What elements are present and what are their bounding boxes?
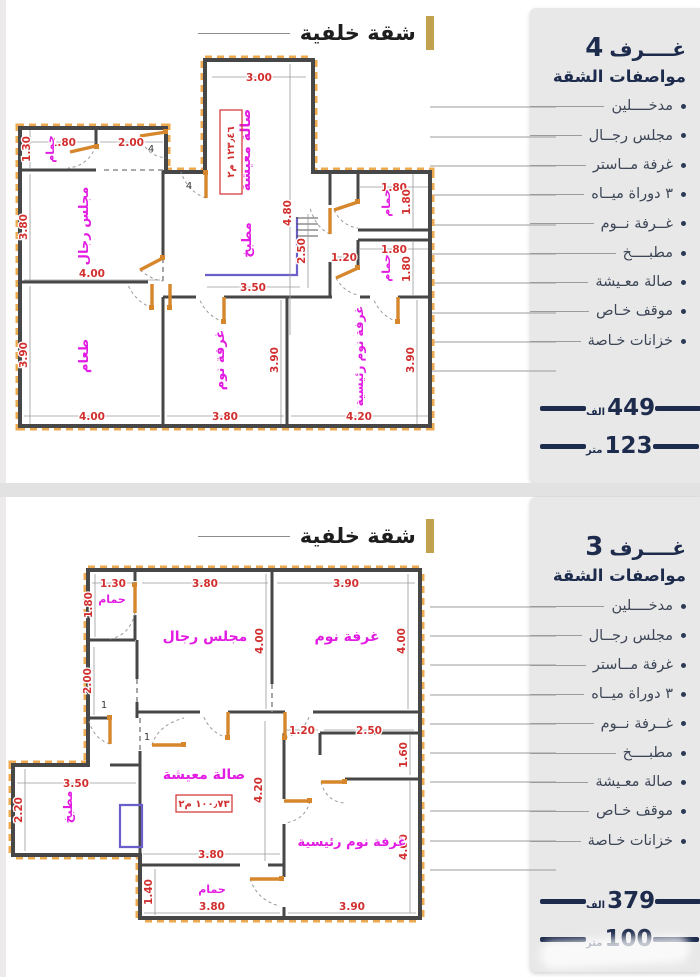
dim-label: 1.40	[143, 879, 155, 905]
walls	[13, 570, 420, 918]
connector-line	[530, 723, 594, 724]
dim-label: 1.80	[401, 256, 413, 282]
specs-title: مواصفات الشقة	[553, 67, 686, 86]
connector-line	[530, 194, 584, 195]
list-item: خزانات خـاصة	[530, 826, 700, 855]
spec-label: غرفة مــاستر	[593, 158, 673, 173]
list-item: خزانات خـاصة	[530, 326, 700, 355]
rooms-count-header: 4 غــــرف	[585, 35, 686, 61]
dim-label: 1.20	[331, 252, 357, 264]
dim-label: 2.50	[356, 725, 382, 737]
list-item: موقف خـاص	[530, 297, 700, 326]
price-unit: الف	[586, 407, 605, 418]
specs-panel-4rooms: 4 غــــرف مواصفات الشقة مدخــــلين مجلس …	[530, 8, 700, 483]
spec-label: مدخــــلين	[611, 99, 673, 114]
dim-label: 3.80	[192, 578, 218, 590]
bullet-icon	[681, 339, 686, 344]
bullet-icon	[681, 780, 686, 785]
connector-line	[530, 135, 582, 136]
dim-label: 4.00	[79, 268, 105, 280]
dimension-lines	[17, 574, 416, 915]
size-value: 123	[605, 435, 653, 458]
rooms-count-number: 3	[585, 534, 603, 560]
price-row: 449 الف	[540, 397, 690, 420]
spec-label: خزانات خـاصة	[588, 334, 673, 349]
dim-label: 4.00	[79, 411, 105, 423]
area-badge-box	[220, 110, 242, 194]
dim-label: 4.00	[396, 628, 408, 654]
spec-label: خزانات خـاصة	[588, 834, 673, 849]
connector-line	[530, 811, 589, 812]
list-item: صالة معـيشة	[530, 268, 700, 297]
room-label: صالة معيشة	[163, 767, 245, 783]
spec-label: موقف خـاص	[596, 804, 673, 819]
room-label: مطبخ	[240, 222, 255, 257]
list-item: مجلس رجــال	[530, 621, 700, 650]
size: 123 متر	[586, 435, 653, 458]
dim-label: 3.50	[240, 282, 266, 294]
room-label: غرفة نوم رئيسية	[297, 835, 406, 850]
dimension-lines	[24, 64, 428, 424]
connector-line	[530, 841, 581, 842]
room-label: حمام	[98, 593, 126, 606]
stairs-icon	[296, 218, 318, 236]
connector-line	[530, 311, 589, 312]
list-item: مدخــــلين	[530, 592, 700, 621]
bullet-icon	[681, 633, 686, 638]
bullet-icon	[681, 721, 686, 726]
spec-label: موقف خـاص	[596, 304, 673, 319]
bullet-icon	[681, 251, 686, 256]
connector-line	[530, 341, 581, 342]
plan-title-text: شقة خلفية	[300, 524, 416, 548]
dash-icon	[653, 444, 699, 449]
room-label: حمام	[198, 883, 226, 896]
spec-label: غــرفة نــوم	[601, 717, 673, 732]
room-label: حمام	[44, 135, 57, 163]
connector-line	[530, 253, 616, 254]
dim-label: 4.80	[282, 200, 294, 226]
dash-icon	[540, 899, 586, 904]
rooms-count-number: 4	[585, 35, 603, 61]
connector-line	[530, 606, 604, 607]
spec-label: مدخــــلين	[611, 599, 673, 614]
size-unit: متر	[586, 445, 603, 456]
spec-label: مطبــــخ	[623, 746, 673, 761]
area-badge: ١٢٣٫٤٦ م٢	[226, 126, 237, 177]
connector-line	[530, 223, 594, 224]
dim-label: 2.50	[296, 238, 308, 264]
area-badge: ١٠٠٫٧٣ م٢	[178, 799, 229, 810]
dim-label: 1.80	[83, 592, 95, 618]
spec-label: ٣ دوراة ميــاه	[591, 187, 673, 202]
bullet-icon	[681, 604, 686, 609]
spec-label: صالة معـيشة	[595, 775, 673, 790]
list-item: ٣ دوراة ميــاه	[530, 180, 700, 209]
dim-label: 3.80	[198, 849, 224, 861]
title-gold-bar-icon	[426, 16, 434, 50]
list-item: غــرفة نــوم	[530, 709, 700, 738]
door-number: 4	[186, 181, 192, 192]
spec-label: مطبــــخ	[623, 246, 673, 261]
kitchen-counter	[120, 805, 142, 847]
dim-label: 3.80	[18, 214, 30, 240]
title-line	[198, 536, 290, 537]
room-labels: صالة معيشة ١٢٣٫٤٦ م٢ حمام مجلس رجال مطبخ…	[44, 109, 393, 407]
price-value: 379	[607, 890, 655, 913]
list-item: مطبــــخ	[530, 738, 700, 767]
door-number: 1	[144, 732, 150, 743]
price-unit: الف	[586, 900, 605, 911]
dim-label: 1.30	[21, 136, 33, 162]
room-label: مجلس رجال	[163, 629, 248, 645]
doors	[89, 582, 347, 906]
dim-label: 1.30	[100, 578, 126, 590]
dim-label: 3.80	[199, 901, 225, 913]
dimension-labels: 1.30 1.80 3.80 3.90 4.00 4.00 2.00 1.20 …	[13, 578, 410, 913]
dim-label: 3.90	[269, 347, 281, 373]
bullet-icon	[681, 104, 686, 109]
connector-line	[530, 635, 582, 636]
price: 379 الف	[586, 890, 655, 913]
bullet-icon	[681, 809, 686, 814]
spec-label: غــرفة نــوم	[601, 217, 673, 232]
dim-label: 1.80	[401, 189, 413, 215]
door-number: 4	[148, 144, 154, 155]
bullet-icon	[681, 692, 686, 697]
plan-title: شقة خلفية	[198, 16, 434, 50]
bullet-icon	[681, 221, 686, 226]
dim-label: 3.80	[212, 411, 238, 423]
dash-icon	[655, 899, 700, 904]
dim-label: 3.50	[63, 778, 89, 790]
dim-label: 3.00	[246, 72, 272, 84]
connector-line	[530, 165, 586, 166]
spec-label: غرفة مــاستر	[593, 658, 673, 673]
price-value: 449	[607, 397, 655, 420]
bullet-icon	[681, 309, 686, 314]
spec-label: مجلس رجــال	[589, 129, 673, 144]
spec-label: صالة معـيشة	[595, 275, 673, 290]
room-label: حمام	[380, 254, 393, 282]
spec-label: ٣ دوراة ميــاه	[591, 687, 673, 702]
price-row: 379 الف	[540, 890, 690, 913]
specs-list: مدخــــلين مجلس رجــال غرفة مــاستر ٣ دو…	[530, 92, 700, 356]
size-row: 123 متر	[540, 435, 690, 458]
door-number: 1	[101, 700, 107, 711]
list-item: غرفة مــاستر	[530, 151, 700, 180]
dim-label: 1.60	[398, 742, 410, 768]
dash-icon	[655, 406, 700, 411]
room-label: غرفة نوم	[314, 629, 379, 645]
room-label: صالة معيشة	[238, 109, 254, 191]
room-label: طعام	[77, 339, 92, 373]
specs-panel-3rooms: 3 غــــرف مواصفات الشقة مدخــــلين مجلس …	[530, 497, 700, 972]
bullet-icon	[681, 839, 686, 844]
connector-line	[530, 282, 588, 283]
list-item: غرفة مــاستر	[530, 651, 700, 680]
list-item: موقف خـاص	[530, 797, 700, 826]
room-label: مطبخ	[61, 791, 75, 824]
dim-label: 4.00	[254, 628, 266, 654]
dim-label: 1.80	[381, 182, 407, 194]
title-gold-bar-icon	[426, 519, 434, 553]
doors	[68, 129, 400, 324]
spec-label: مجلس رجــال	[589, 629, 673, 644]
bullet-icon	[681, 663, 686, 668]
bullet-icon	[681, 192, 686, 197]
walls	[20, 60, 430, 426]
dim-label: 2.00	[82, 668, 94, 694]
dash-icon	[540, 444, 586, 449]
list-item: غــرفة نــوم	[530, 209, 700, 238]
dim-label: 1.80	[50, 137, 76, 149]
bullet-icon	[681, 751, 686, 756]
section-4-rooms: 4 غــــرف مواصفات الشقة مدخــــلين مجلس …	[0, 0, 700, 489]
dim-label: 4.00	[398, 834, 410, 860]
title-line	[198, 33, 290, 34]
dash-icon	[540, 406, 586, 411]
dim-label: 3.90	[333, 578, 359, 590]
room-label: غرفة نوم	[213, 330, 228, 390]
list-item: صالة معـيشة	[530, 768, 700, 797]
section-3-rooms: 3 غــــرف مواصفات الشقة مدخــــلين مجلس …	[0, 489, 700, 977]
dimension-labels: 3.00 4.80 1.80 2.00 1.30 3.80 4.00 3.90 …	[18, 72, 417, 423]
bullet-icon	[681, 163, 686, 168]
plan-title-text: شقة خلفية	[300, 21, 416, 45]
connector-line	[530, 694, 584, 695]
list-item: مجلس رجــال	[530, 121, 700, 150]
room-labels: حمام مجلس رجال غرفة نوم مطبخ صالة معيشة …	[61, 593, 407, 896]
dim-label: 1.80	[381, 244, 407, 256]
plan-title: شقة خلفية	[198, 519, 434, 553]
rooms-count-header: 3 غــــرف	[585, 534, 686, 560]
room-label: حمام	[380, 189, 393, 217]
dim-label: 4.20	[346, 411, 372, 423]
rooms-word: غــــرف	[609, 39, 686, 59]
list-item: مدخــــلين	[530, 92, 700, 121]
specs-list: مدخــــلين مجلس رجــال غرفة مــاستر ٣ دو…	[530, 592, 700, 856]
dim-label: 3.90	[339, 901, 365, 913]
price: 449 الف	[586, 397, 655, 420]
area-badge-box	[176, 795, 232, 812]
connector-line	[530, 106, 604, 107]
connector-line	[530, 782, 588, 783]
dim-label: 3.90	[405, 347, 417, 373]
room-label: غرفة نوم رئيسية	[352, 306, 367, 407]
connector-line	[530, 665, 586, 666]
dim-label: 1.20	[289, 725, 315, 737]
dim-label: 2.00	[118, 137, 144, 149]
dim-label: 3.90	[18, 342, 30, 368]
room-label: مجلس رجال	[77, 187, 92, 266]
connector-line	[530, 753, 616, 754]
kitchen-counter	[205, 217, 297, 275]
bullet-icon	[681, 280, 686, 285]
dim-label: 4.20	[253, 777, 265, 803]
rooms-word: غــــرف	[609, 538, 686, 558]
list-item: ٣ دوراة ميــاه	[530, 680, 700, 709]
bullet-icon	[681, 133, 686, 138]
real-estate-flyer: { "sections": [ { "title": "شقة خلفية", …	[0, 0, 700, 977]
specs-title: مواصفات الشقة	[553, 566, 686, 585]
list-item: مطبــــخ	[530, 238, 700, 267]
dim-label: 2.20	[13, 797, 25, 823]
